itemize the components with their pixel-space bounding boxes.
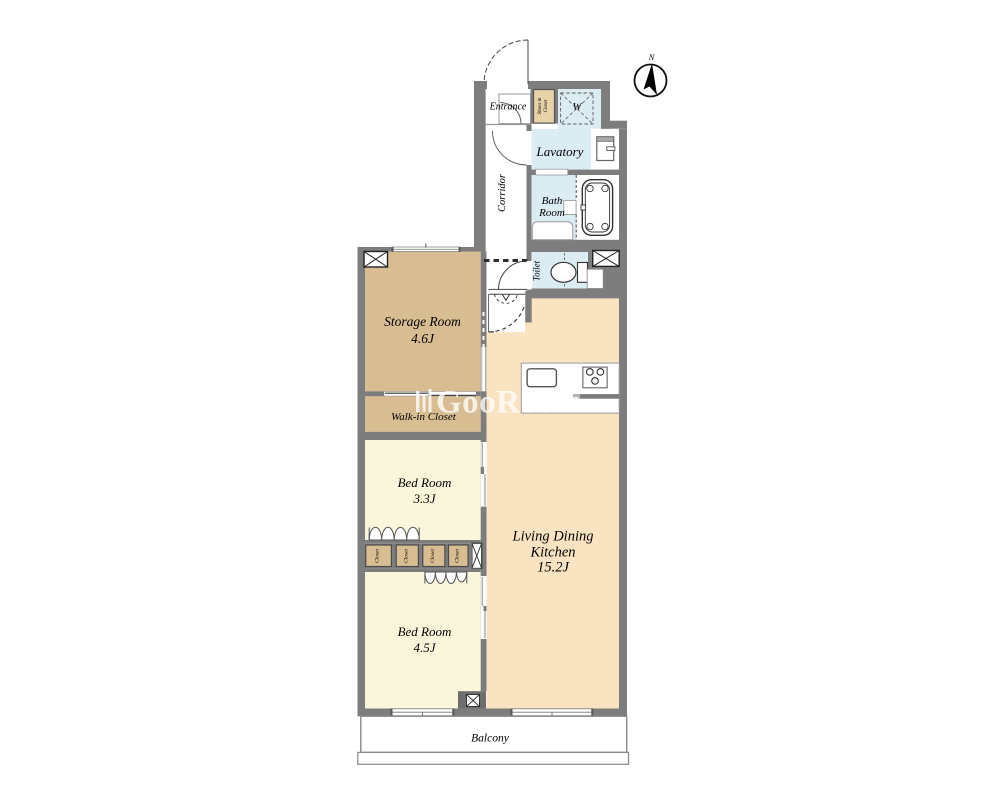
svg-text:4.6J: 4.6J (411, 331, 435, 346)
svg-text:Living Dining: Living Dining (512, 529, 594, 545)
svg-text:4.5J: 4.5J (413, 640, 436, 655)
svg-text:Closet: Closet (544, 99, 549, 112)
svg-text:Balcony: Balcony (471, 733, 510, 745)
svg-text:Closet: Closet (430, 549, 436, 564)
svg-text:Closet: Closet (454, 549, 460, 564)
svg-text:Shoes in: Shoes in (538, 97, 543, 114)
svg-text:GooRoom: GooRoom (436, 385, 583, 421)
svg-text:Closet: Closet (403, 549, 409, 564)
svg-text:Kitchen: Kitchen (529, 545, 575, 561)
svg-text:Lavatory: Lavatory (536, 144, 584, 159)
svg-text:Room: Room (538, 207, 565, 219)
svg-text:Toilet: Toilet (532, 260, 542, 281)
svg-text:W: W (573, 102, 583, 113)
svg-text:Bed Room: Bed Room (398, 624, 452, 639)
svg-text:Entrance: Entrance (489, 102, 527, 113)
svg-text:Storage Room: Storage Room (384, 314, 461, 329)
svg-text:Corridor: Corridor (497, 173, 508, 212)
svg-text:Bath: Bath (542, 195, 563, 207)
svg-text:Bed Room: Bed Room (398, 475, 452, 490)
svg-text:3.3J: 3.3J (412, 491, 436, 506)
svg-text:15.2J: 15.2J (537, 560, 569, 576)
svg-text:Closet: Closet (375, 549, 381, 564)
